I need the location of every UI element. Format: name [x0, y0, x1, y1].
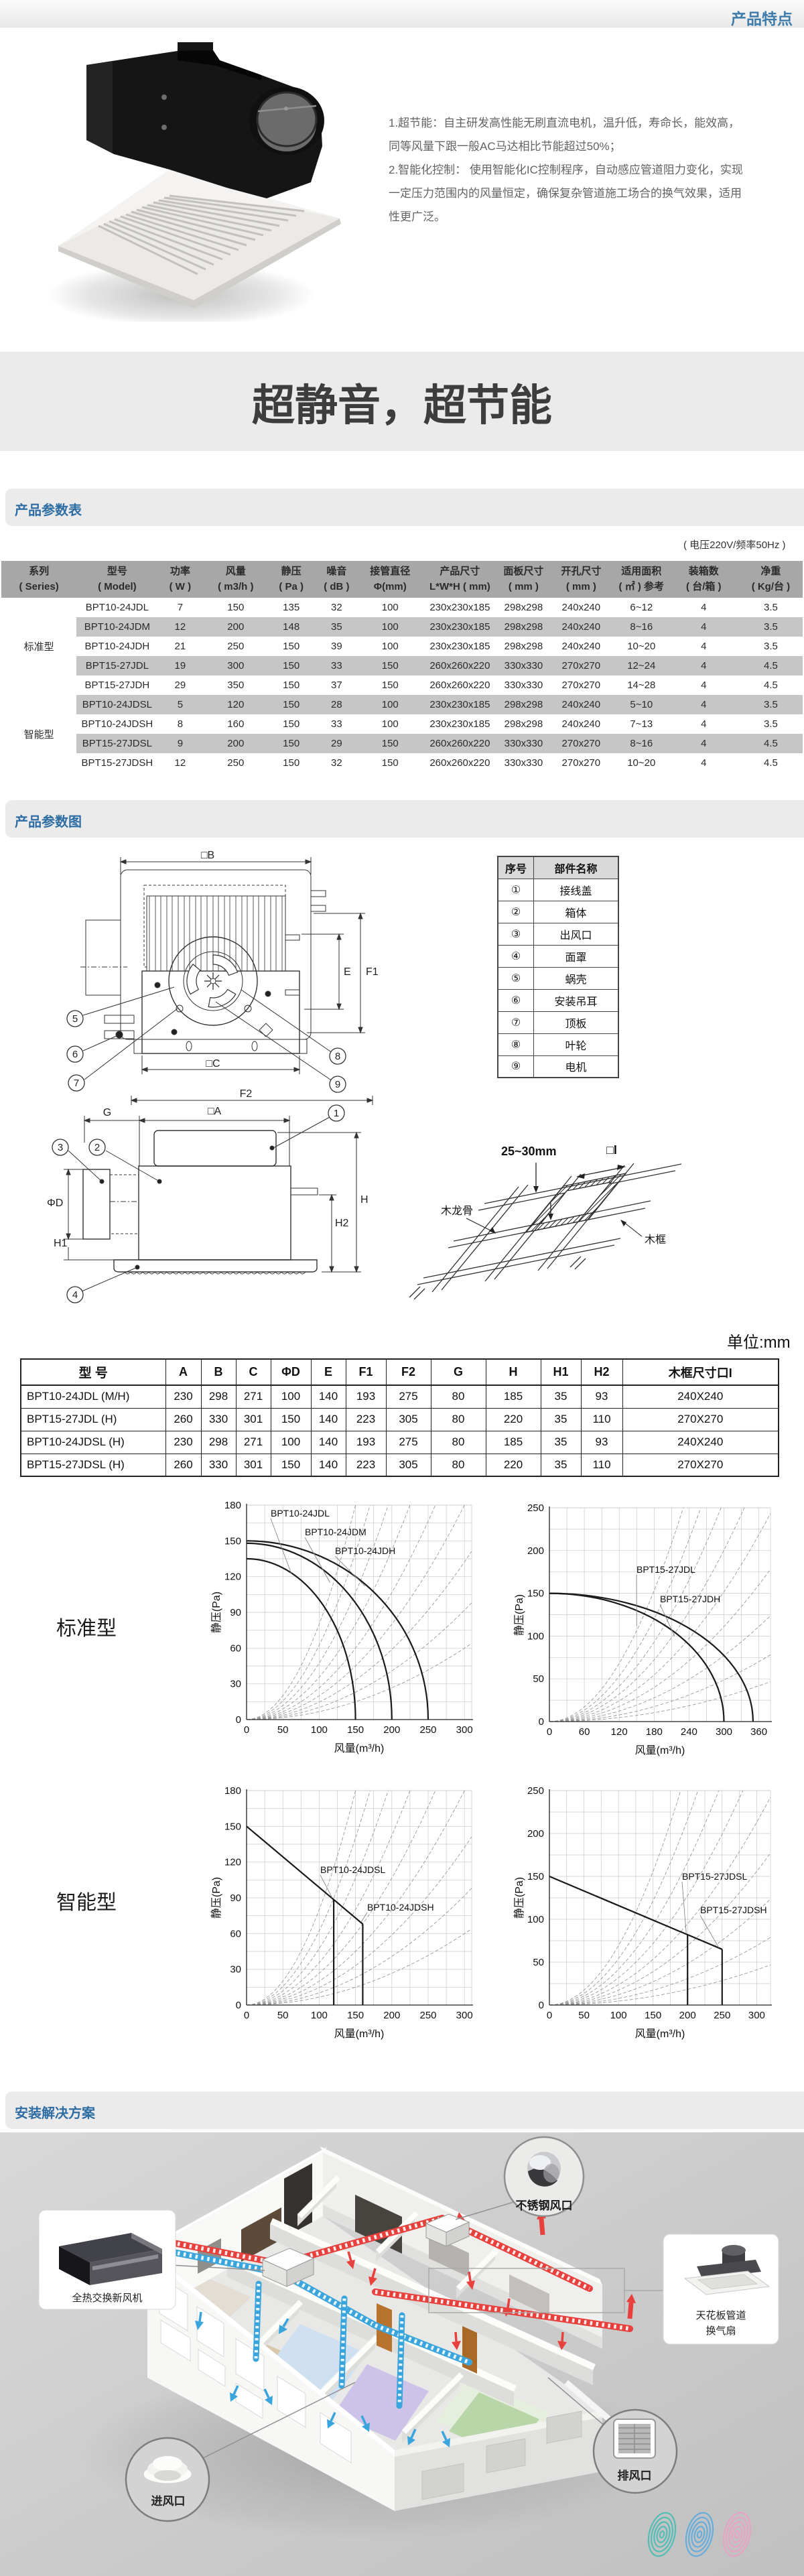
- svg-text:50: 50: [277, 1724, 289, 1736]
- svg-text:120: 120: [224, 1571, 241, 1583]
- svg-text:100: 100: [311, 2010, 328, 2021]
- svg-text:50: 50: [533, 1957, 544, 1968]
- svg-text:BPT10-24JDL: BPT10-24JDL: [271, 1508, 330, 1519]
- svg-text:50: 50: [277, 2010, 289, 2021]
- svg-text:100: 100: [311, 1724, 328, 1736]
- svg-text:静压(Pa): 静压(Pa): [210, 1877, 222, 1919]
- svg-text:0: 0: [539, 1716, 544, 1728]
- svg-text:200: 200: [527, 1545, 544, 1557]
- svg-text:BPT10-24JDM: BPT10-24JDM: [305, 1527, 366, 1537]
- svg-text:天花板管道: 天花板管道: [695, 2309, 746, 2321]
- svg-text:7: 7: [74, 1078, 79, 1089]
- svg-text:5: 5: [72, 1013, 78, 1025]
- svg-text:60: 60: [230, 1643, 241, 1654]
- svg-text:E: E: [344, 966, 351, 978]
- svg-text:0: 0: [547, 2010, 552, 2021]
- svg-text:进风口: 进风口: [151, 2495, 186, 2508]
- svg-text:200: 200: [383, 1724, 400, 1736]
- svg-text:全热交换新风机: 全热交换新风机: [72, 2292, 142, 2304]
- svg-text:静压(Pa): 静压(Pa): [513, 1594, 525, 1636]
- svg-text:BPT10-24JDSL: BPT10-24JDSL: [320, 1864, 385, 1875]
- svg-text:120: 120: [611, 1726, 628, 1738]
- svg-text:换气扇: 换气扇: [706, 2325, 736, 2337]
- svg-text:风量(m³/h): 风量(m³/h): [334, 2028, 385, 2040]
- svg-text:1: 1: [334, 1108, 339, 1119]
- svg-text:2: 2: [94, 1142, 100, 1153]
- svg-text:100: 100: [527, 1630, 544, 1642]
- svg-text:150: 150: [527, 1871, 544, 1882]
- svg-text:150: 150: [527, 1588, 544, 1600]
- svg-text:□B: □B: [201, 850, 214, 861]
- svg-text:250: 250: [714, 2010, 730, 2021]
- svg-text:静压(Pa): 静压(Pa): [513, 1877, 525, 1919]
- svg-text:150: 150: [224, 1821, 241, 1832]
- svg-text:100: 100: [527, 1914, 544, 1925]
- svg-text:8: 8: [335, 1051, 340, 1062]
- svg-text:0: 0: [539, 2000, 544, 2011]
- svg-text:不锈钢风口: 不锈钢风口: [516, 2199, 573, 2212]
- svg-text:60: 60: [230, 1928, 241, 1939]
- svg-text:30: 30: [230, 1679, 241, 1690]
- svg-text:60: 60: [579, 1726, 590, 1738]
- svg-text:120: 120: [224, 1857, 241, 1868]
- svg-text:F1: F1: [366, 966, 379, 978]
- svg-text:90: 90: [230, 1607, 241, 1618]
- svg-text:360: 360: [750, 1726, 767, 1738]
- svg-text:H1: H1: [54, 1238, 68, 1249]
- svg-text:4: 4: [72, 1289, 78, 1301]
- svg-text:0: 0: [244, 1724, 249, 1736]
- svg-text:200: 200: [383, 2010, 400, 2021]
- svg-text:200: 200: [527, 1828, 544, 1840]
- svg-text:风量(m³/h): 风量(m³/h): [334, 1743, 385, 1754]
- svg-text:□I: □I: [606, 1143, 617, 1157]
- svg-text:木框: 木框: [645, 1234, 666, 1246]
- svg-text:6: 6: [72, 1049, 78, 1060]
- svg-text:9: 9: [335, 1079, 340, 1090]
- svg-text:150: 150: [224, 1535, 241, 1547]
- svg-text:风量(m³/h): 风量(m³/h): [635, 1745, 685, 1756]
- svg-text:BPT15-27JDL: BPT15-27JDL: [636, 1564, 695, 1575]
- svg-text:50: 50: [578, 2010, 590, 2021]
- svg-text:180: 180: [224, 1785, 241, 1797]
- svg-text:90: 90: [230, 1892, 241, 1904]
- svg-text:100: 100: [610, 2010, 627, 2021]
- svg-text:300: 300: [456, 2010, 473, 2021]
- svg-text:□A: □A: [208, 1106, 222, 1117]
- svg-text:180: 180: [224, 1500, 241, 1511]
- svg-text:150: 150: [347, 2010, 364, 2021]
- svg-text:250: 250: [419, 2010, 436, 2021]
- svg-text:BPT15-27JDSL: BPT15-27JDSL: [682, 1871, 747, 1882]
- svg-text:G: G: [103, 1107, 111, 1118]
- svg-text:50: 50: [533, 1673, 544, 1685]
- svg-text:0: 0: [547, 1726, 552, 1738]
- svg-text:F2: F2: [240, 1088, 253, 1100]
- svg-text:180: 180: [646, 1726, 663, 1738]
- svg-text:240: 240: [681, 1726, 697, 1738]
- svg-text:30: 30: [230, 1964, 241, 1976]
- svg-text:3: 3: [58, 1142, 63, 1153]
- svg-text:0: 0: [236, 2000, 241, 2011]
- svg-text:风量(m³/h): 风量(m³/h): [635, 2028, 685, 2040]
- svg-text:250: 250: [527, 1785, 544, 1797]
- svg-text:300: 300: [748, 2010, 765, 2021]
- svg-text:H: H: [360, 1194, 368, 1206]
- svg-text:150: 150: [347, 1724, 364, 1736]
- svg-text:250: 250: [419, 1724, 436, 1736]
- svg-text:静压(Pa): 静压(Pa): [210, 1592, 222, 1633]
- svg-text:300: 300: [456, 1724, 473, 1736]
- svg-text:BPT10-24JDH: BPT10-24JDH: [335, 1545, 395, 1556]
- svg-text:木龙骨: 木龙骨: [441, 1205, 473, 1217]
- svg-text:ΦD: ΦD: [47, 1198, 63, 1209]
- svg-text:0: 0: [236, 1714, 241, 1726]
- svg-text:BPT10-24JDSH: BPT10-24JDSH: [367, 1902, 434, 1913]
- svg-text:BPT15-27JDH: BPT15-27JDH: [660, 1594, 720, 1604]
- svg-text:250: 250: [527, 1502, 544, 1514]
- svg-text:H2: H2: [335, 1218, 349, 1229]
- svg-text:150: 150: [645, 2010, 661, 2021]
- svg-text:300: 300: [716, 1726, 732, 1738]
- svg-text:□C: □C: [206, 1058, 220, 1070]
- svg-text:25~30mm: 25~30mm: [501, 1145, 557, 1158]
- svg-text:200: 200: [679, 2010, 696, 2021]
- svg-text:0: 0: [244, 2010, 249, 2021]
- svg-text:BPT15-27JDSH: BPT15-27JDSH: [700, 1905, 767, 1915]
- svg-text:排风口: 排风口: [618, 2469, 652, 2482]
